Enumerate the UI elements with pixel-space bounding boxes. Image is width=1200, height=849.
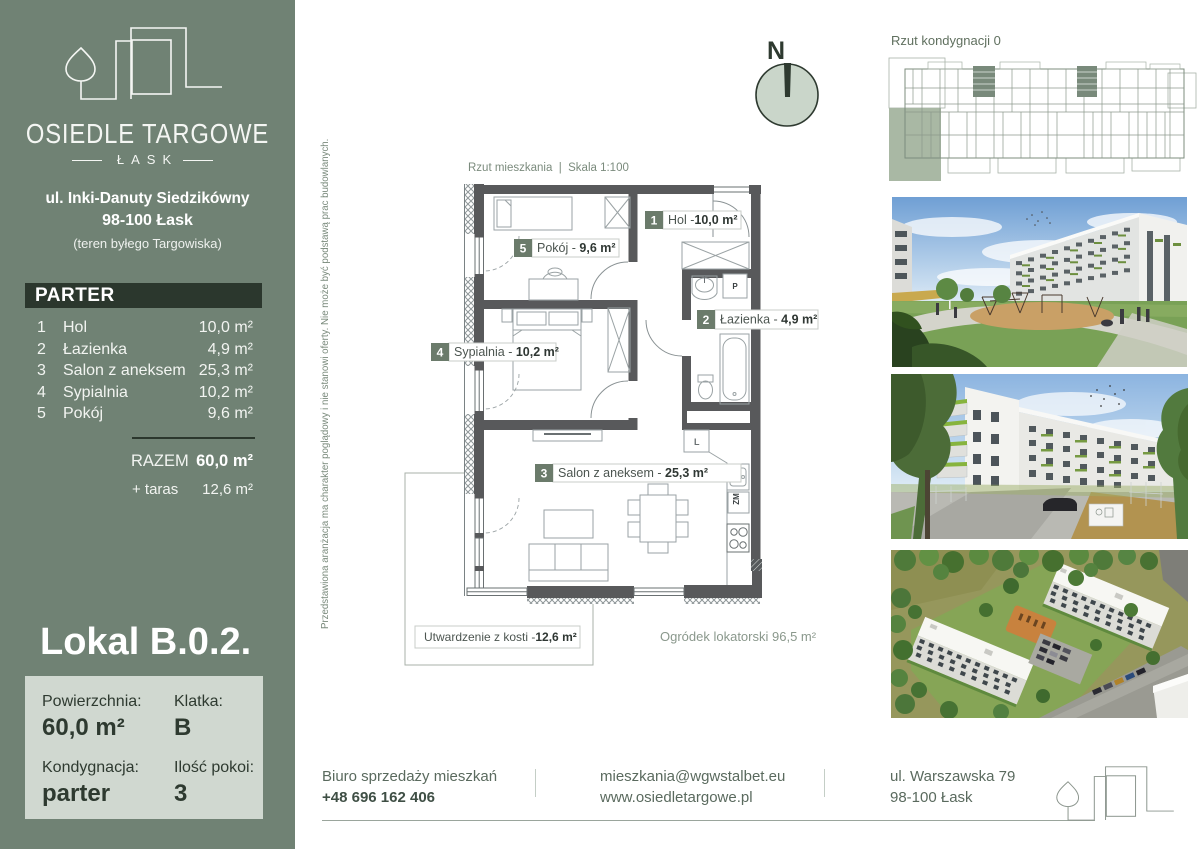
svg-text:Hol -10,0 m²: Hol -10,0 m²	[668, 213, 738, 227]
svg-text:L: L	[694, 437, 700, 447]
svg-text:Sypialnia - 10,2 m²: Sypialnia - 10,2 m²	[454, 345, 559, 359]
svg-text:5: 5	[520, 242, 527, 256]
svg-text:1: 1	[651, 214, 658, 228]
svg-text:Rzut kondygnacji 0: Rzut kondygnacji 0	[891, 33, 1001, 48]
svg-text:ZM: ZM	[732, 493, 741, 505]
svg-text:3: 3	[541, 467, 548, 481]
svg-text:Pokój - 9,6 m²: Pokój - 9,6 m²	[537, 241, 616, 255]
svg-text:Ogródek lokatorski 96,5 m²: Ogródek lokatorski 96,5 m²	[660, 629, 817, 644]
svg-text:Łazienka - 4,9 m²: Łazienka - 4,9 m²	[720, 313, 817, 327]
svg-text:4: 4	[437, 346, 444, 360]
svg-text:2: 2	[703, 313, 710, 327]
svg-text:Utwardzenie z kosti -12,6 m²: Utwardzenie z kosti -12,6 m²	[424, 630, 577, 644]
svg-text:Salon z aneksem - 25,3 m²: Salon z aneksem - 25,3 m²	[558, 466, 708, 480]
svg-text:P: P	[732, 282, 738, 291]
svg-text:N: N	[767, 37, 785, 65]
